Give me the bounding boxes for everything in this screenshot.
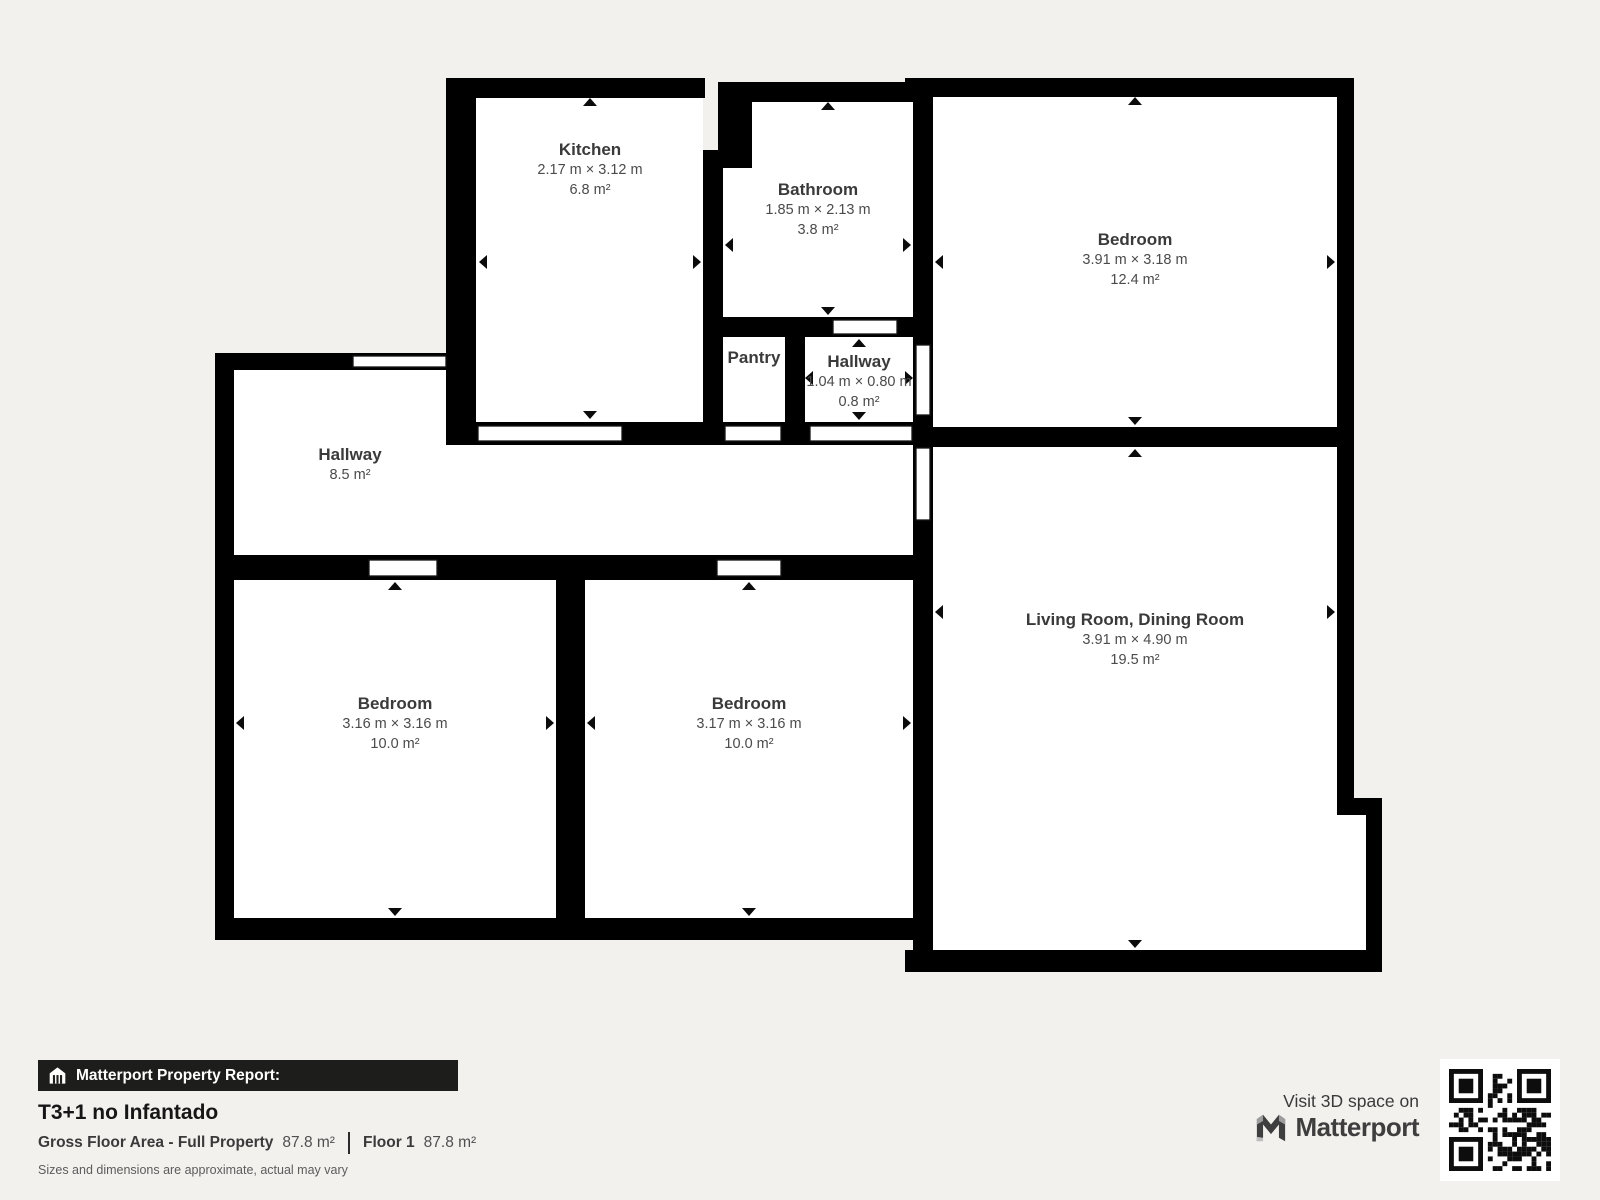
gross-floor-area-value: 87.8 m² [282,1134,335,1152]
room-dimensions: 3.17 m × 3.16 m [696,714,801,734]
wall [215,353,234,940]
room-label-bedroom-top-right: Bedroom 3.91 m × 3.18 m 12.4 m² [1082,230,1187,290]
room-name: Bedroom [342,694,447,714]
room-area: 10.0 m² [342,734,447,754]
report-banner: Matterport Property Report: [38,1060,458,1091]
door-opening [369,560,437,576]
room-area: 0.8 m² [806,392,911,412]
wall [913,82,933,972]
floor-plan-report-page: { "colors":{ "background":"#f2f1ee", "wa… [0,0,1600,1200]
room-label-living-room: Living Room, Dining Room 3.91 m × 4.90 m… [1026,610,1244,670]
door-opening [717,560,781,576]
door-opening [916,448,930,520]
wall [737,82,933,102]
room-dimensions: 3.91 m × 3.18 m [1082,250,1187,270]
room-dimensions: 1.04 m × 0.80 m [806,372,911,392]
room-area: 6.8 m² [537,180,642,200]
room-area: 3.8 m² [765,220,870,240]
room-label-bedroom-middle: Bedroom 3.17 m × 3.16 m 10.0 m² [696,694,801,754]
wall [905,78,1354,97]
wall [446,78,476,445]
property-title: T3+1 no Infantado [38,1101,218,1125]
wall [215,918,933,940]
floor1-label: Floor 1 [363,1134,415,1152]
matterport-wordmark: Matterport [1295,1112,1419,1143]
room-name: Living Room, Dining Room [1026,610,1244,630]
room-name: Bedroom [1082,230,1187,250]
room-name: Hallway [806,352,911,372]
room-label-bathroom: Bathroom 1.85 m × 2.13 m 3.8 m² [765,180,870,240]
room-name: Bathroom [765,180,870,200]
door-opening [725,426,781,441]
door-opening [478,426,622,441]
room-dimensions: 1.85 m × 2.13 m [765,200,870,220]
window-opening [353,356,446,367]
wall [556,580,585,918]
wall [1366,798,1382,972]
room-name: Hallway [318,445,381,465]
visit-3d-space-text: Visit 3D space on [1283,1091,1419,1112]
divider [348,1132,350,1154]
room-living-room [933,447,1366,950]
room-name: Pantry [728,348,781,368]
room-label-hallway-small: Hallway 1.04 m × 0.80 m 0.8 m² [806,352,911,412]
floor1-value: 87.8 m² [424,1134,477,1152]
matterport-m-icon [1255,1113,1287,1143]
room-area: 12.4 m² [1082,270,1187,290]
wall [913,427,1354,447]
report-banner-text: Matterport Property Report: [76,1067,280,1085]
room-dimensions: 3.91 m × 4.90 m [1026,630,1244,650]
room-dimensions: 2.17 m × 3.12 m [537,160,642,180]
wall [905,950,1382,972]
qr-pattern [1449,1069,1551,1171]
disclaimer-text: Sizes and dimensions are approximate, ac… [38,1163,348,1177]
room-label-pantry: Pantry [728,348,781,368]
room-label-hallway: Hallway 8.5 m² [318,445,381,485]
door-opening [810,426,912,441]
qr-code [1440,1059,1560,1181]
wall [703,150,723,445]
door-opening [833,320,897,334]
room-dimensions: 3.16 m × 3.16 m [342,714,447,734]
room-area: 19.5 m² [1026,650,1244,670]
floor-area-summary: Gross Floor Area - Full Property 87.8 m²… [38,1132,476,1154]
wall [215,555,933,580]
room-label-bedroom-left: Bedroom 3.16 m × 3.16 m 10.0 m² [342,694,447,754]
room-area: 10.0 m² [696,734,801,754]
property-report-icon [49,1067,66,1084]
room-label-kitchen: Kitchen 2.17 m × 3.12 m 6.8 m² [537,140,642,200]
gross-floor-area-label: Gross Floor Area - Full Property [38,1134,273,1152]
wall [703,317,933,337]
room-name: Bedroom [696,694,801,714]
wall [446,78,705,98]
door-opening [916,345,930,415]
room-area: 8.5 m² [318,465,381,485]
matterport-logo: Matterport [1255,1112,1419,1143]
room-name: Kitchen [537,140,642,160]
